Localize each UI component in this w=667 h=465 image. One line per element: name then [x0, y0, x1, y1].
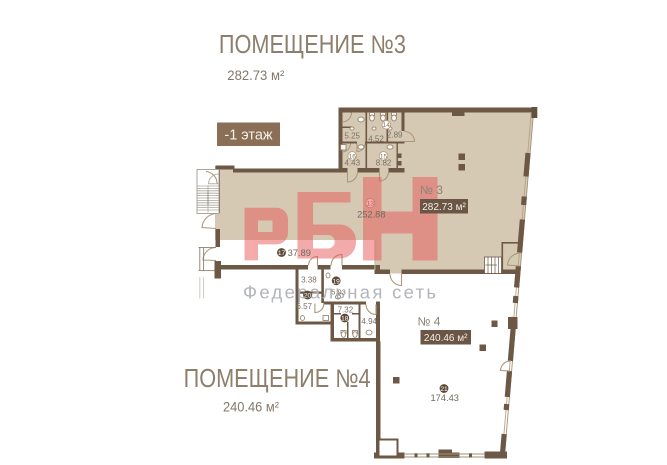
svg-text:8.82: 8.82 [376, 159, 392, 168]
svg-text:2.89: 2.89 [387, 131, 403, 140]
svg-text:14: 14 [383, 122, 391, 129]
svg-text:ПОМЕЩЕНИЕ №3: ПОМЕЩЕНИЕ №3 [219, 31, 406, 59]
svg-text:4.43: 4.43 [345, 159, 361, 168]
svg-text:174.43: 174.43 [430, 393, 458, 403]
svg-text:4.52: 4.52 [368, 135, 384, 144]
svg-text:252.88: 252.88 [357, 209, 385, 219]
svg-text:3.38: 3.38 [301, 276, 317, 285]
svg-text:19: 19 [333, 278, 341, 285]
svg-text:-1 этаж: -1 этаж [224, 128, 273, 144]
svg-text:5.93: 5.93 [331, 288, 346, 297]
svg-text:№ 4: № 4 [418, 315, 441, 329]
svg-text:4.94: 4.94 [361, 317, 377, 326]
svg-text:6.57: 6.57 [296, 302, 312, 311]
svg-text:282.73 м²: 282.73 м² [422, 202, 466, 213]
svg-text:5.25: 5.25 [344, 132, 360, 141]
svg-text:ПОМЕЩЕНИЕ №4: ПОМЕЩЕНИЕ №4 [184, 365, 371, 393]
svg-text:240.46 м²: 240.46 м² [424, 333, 468, 344]
svg-text:18: 18 [341, 316, 349, 323]
svg-text:37.89: 37.89 [288, 248, 311, 258]
svg-text:7.32: 7.32 [338, 306, 354, 315]
svg-text:240.46 м²: 240.46 м² [223, 399, 279, 415]
svg-text:282.73 м²: 282.73 м² [227, 67, 284, 83]
svg-text:№ 3: № 3 [420, 183, 443, 197]
svg-text:17: 17 [278, 250, 286, 257]
svg-text:20: 20 [304, 293, 312, 300]
